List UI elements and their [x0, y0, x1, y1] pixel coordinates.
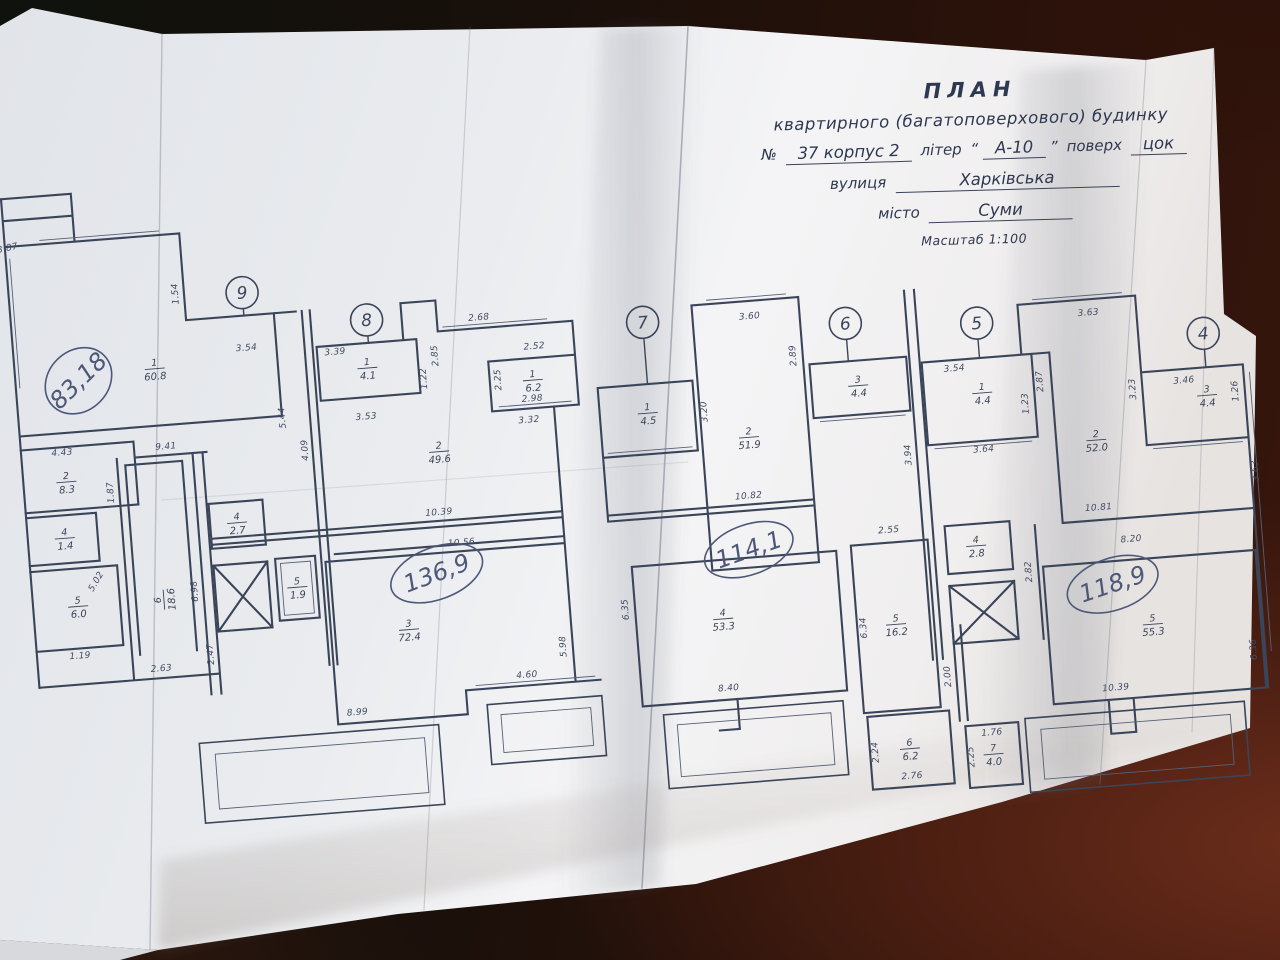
dimension: 3.54	[235, 343, 257, 355]
room-number: 5	[1149, 613, 1156, 624]
dimension: 10.82	[735, 490, 763, 502]
room-area: 4.4	[1199, 398, 1216, 410]
room-number: 2	[1092, 429, 1099, 440]
dimension-label: 10.81	[1085, 502, 1113, 514]
dimension-label: 2.87	[1035, 370, 1047, 392]
building-number-row: № 37 корпус 2 літер “ А-10 ” поверх цок	[741, 133, 1201, 167]
dimension-label: 2.82	[1024, 561, 1036, 583]
dimension: 6.35	[620, 599, 632, 621]
city-value: Суми	[928, 198, 1073, 223]
dimension: 2.47	[206, 643, 218, 665]
room-area: 4.4	[975, 395, 992, 407]
dimension: 2.25	[493, 369, 505, 391]
dimension-label: 10.39	[1102, 682, 1130, 694]
room-area: 2.8	[969, 548, 986, 560]
dimension: 8.99	[346, 707, 368, 719]
street-value: Харківська	[895, 166, 1119, 193]
dimension: 3.60	[739, 311, 761, 323]
dimension-label: 8.20	[1120, 534, 1142, 546]
dimension-label: 10.39	[425, 507, 453, 519]
dimension: 3.20	[699, 401, 711, 423]
dimension: 1.76	[981, 727, 1003, 739]
room-number: 2	[63, 471, 70, 482]
quote-close: ”	[1050, 138, 1058, 156]
floor-label: поверх	[1066, 136, 1122, 156]
dimension: 3.63	[1250, 460, 1262, 482]
room-number: 1	[529, 369, 536, 380]
city-label: місто	[878, 203, 920, 222]
dimension-label: 2.89	[788, 345, 800, 367]
dimension-label: 8.99	[346, 707, 368, 719]
room-area: 4.0	[986, 756, 1003, 768]
dimension-label: 1.19	[69, 651, 91, 663]
room-number: 3	[405, 618, 412, 629]
dimension-label: 4.60	[516, 670, 538, 682]
room-number: 7	[990, 743, 997, 754]
photo-of-floor-plan: 987654160.828.341.456.0618.614.1249.616.…	[0, 0, 1280, 960]
dimension: 5.98	[558, 636, 570, 658]
room-area: 1.4	[57, 541, 74, 553]
room-number: 2	[745, 426, 752, 437]
dimension: 3.94	[903, 444, 915, 466]
dimension-label: 6.34	[858, 617, 870, 639]
room-number: 3	[1203, 384, 1210, 395]
dimension: 1.26	[1230, 380, 1242, 402]
room-area: 55.3	[1142, 626, 1165, 639]
dimension: 8.40	[718, 683, 740, 695]
dimension: 6.34	[858, 617, 870, 639]
dimension: 6.36	[1248, 638, 1260, 660]
dimension-label: 2.25	[966, 746, 978, 768]
dimension-label: 2.55	[878, 525, 900, 537]
dimension: 2.55	[878, 525, 900, 537]
dimension: 3.23	[1128, 378, 1140, 400]
dimension-label: 3.32	[518, 415, 540, 427]
dimension: 4.60	[516, 670, 538, 682]
dimension-label: 6.36	[1248, 638, 1260, 660]
dimension-label: 3.63	[1250, 460, 1262, 482]
dimension: 6.98	[190, 580, 202, 602]
room-area: 51.9	[738, 439, 761, 452]
dimension: 9.41	[155, 441, 177, 453]
dimension-label: 3.39	[324, 347, 346, 359]
dimension: 5.44	[277, 407, 289, 429]
city-row: місто Суми	[743, 195, 1203, 229]
dimension: 3.53	[355, 411, 377, 423]
dimension-label: 5.44	[277, 407, 289, 429]
axis-number: 8	[360, 311, 373, 332]
room-area: 4.5	[640, 416, 657, 428]
dimension-label: 10.82	[735, 490, 763, 502]
room-number: 1	[644, 402, 651, 413]
dimension: 1.23	[1020, 392, 1032, 414]
quote-open: “	[970, 140, 978, 158]
no-label: №	[761, 145, 777, 163]
axis-number: 4	[1197, 324, 1209, 345]
dimension: 10.39	[425, 507, 453, 519]
room-number: 5	[293, 576, 300, 587]
dimension-label: 4.09	[300, 439, 312, 461]
dimension: 3.63	[1077, 307, 1099, 319]
room-area: 18.6	[166, 588, 179, 611]
room-number: 5	[74, 595, 81, 606]
room-number: 4	[233, 512, 240, 523]
dimension: 2.76	[901, 771, 923, 783]
dimension-label: 2.68	[468, 312, 490, 324]
dimension: 3.46	[1173, 375, 1195, 387]
dimension-label: 1.26	[1230, 380, 1242, 402]
dimension-label: 2.85	[430, 345, 442, 367]
dimension: 1.22	[419, 368, 431, 390]
room-area: 52.0	[1085, 442, 1108, 455]
dimension: 2.87	[1035, 370, 1047, 392]
room-number: 6	[153, 597, 164, 604]
axis-number: 5	[971, 314, 983, 335]
axis-stub	[243, 309, 244, 317]
room-area: 1.9	[290, 590, 307, 602]
dimension: 3.32	[518, 415, 540, 427]
dimension-label: 3.63	[1077, 307, 1099, 319]
liter-value: А-10	[983, 137, 1046, 160]
dimension-label: 1.23	[1020, 392, 1032, 414]
dimension: 2.24	[870, 741, 882, 763]
dimension-label: 3.54	[943, 363, 965, 375]
dimension: 2.00	[943, 665, 955, 687]
dimension-label: 4.43	[51, 447, 73, 459]
dimension-label: 8.40	[718, 683, 740, 695]
room-area: 53.3	[712, 621, 735, 634]
room-area: 6.0	[70, 609, 87, 621]
dimension-label: 2.47	[206, 643, 218, 665]
dimension-label: 3.23	[1128, 378, 1140, 400]
dimension: 2.98	[521, 393, 543, 405]
dimension-label: 6.35	[620, 599, 632, 621]
dimension-label: 1.54	[170, 283, 182, 305]
dimension-label: 2.25	[493, 369, 505, 391]
plan-subtitle: квартирного (багатоповерхового) будинку	[741, 104, 1201, 136]
room-number: 5	[892, 613, 899, 624]
street-row: вулиця Харківська	[742, 164, 1202, 198]
room-area: 6.2	[902, 751, 919, 763]
room-area: 49.6	[428, 454, 451, 467]
axis-number: 7	[637, 313, 650, 334]
room-area: 4.1	[360, 370, 377, 382]
room-number: 4	[972, 535, 979, 546]
dimension-label: 9.41	[155, 441, 177, 453]
dimension: 2.89	[788, 345, 800, 367]
axis-stub	[368, 336, 369, 344]
dimension: 2.68	[468, 312, 490, 324]
dimension: 10.81	[1085, 502, 1113, 514]
room-area: 2.7	[229, 525, 246, 537]
dimension-label: 2.00	[943, 665, 955, 687]
dimension: 2.63	[150, 663, 172, 675]
dimension-label: 2.76	[901, 771, 923, 783]
room-number: 1	[363, 357, 370, 368]
dimension: 4.43	[51, 447, 73, 459]
dimension: 1.87	[106, 482, 118, 504]
dimension: 8.20	[1120, 534, 1142, 546]
dimension-label: 2.98	[521, 393, 543, 405]
dimension: 1.54	[170, 283, 182, 305]
dimension-label: 1.76	[981, 727, 1003, 739]
room-area: 16.2	[885, 626, 908, 639]
dimension: 2.52	[523, 341, 545, 353]
dimension-label: 2.52	[523, 341, 545, 353]
dimension: 4.09	[300, 439, 312, 461]
room-number: 4	[61, 527, 68, 538]
dimension: 2.85	[430, 345, 442, 367]
room-area: 60.8	[144, 371, 167, 384]
dimension-label: 3.53	[355, 411, 377, 423]
room-number: 2	[435, 440, 442, 451]
room-number: 3	[854, 374, 861, 385]
title-block: ПЛАН квартирного (багатоповерхового) буд…	[740, 72, 1205, 254]
dimension-label: 2.63	[150, 663, 172, 675]
dimension-label: 3.54	[235, 343, 257, 355]
floor-value: цок	[1131, 133, 1187, 156]
dimension: 2.25	[966, 746, 978, 768]
axis-number: 9	[236, 283, 248, 304]
dimension-label: 3.20	[699, 401, 711, 423]
dimension: 3.64	[973, 444, 995, 456]
dimension: 3.39	[324, 347, 346, 359]
dimension: 3.54	[943, 363, 965, 375]
building-number-value: 37 корпус 2	[785, 141, 912, 166]
dimension-label: 5.98	[558, 636, 570, 658]
liter-label: літер	[920, 140, 962, 159]
dimension-label: 1.22	[419, 368, 431, 390]
room-number: 1	[978, 382, 985, 393]
dimension-label: 3.94	[903, 444, 915, 466]
dimension-label: 3.46	[1173, 375, 1195, 387]
room-area: 4.4	[851, 388, 868, 400]
dimension-label: 6.98	[190, 580, 202, 602]
dimension: 2.82	[1024, 561, 1036, 583]
room-number: 6	[906, 737, 913, 748]
dimension-label: 2.24	[870, 741, 882, 763]
room-number: 4	[719, 608, 726, 619]
room-area: 72.4	[398, 632, 421, 645]
street-label: вулиця	[830, 173, 887, 193]
dimension-label: 1.87	[106, 482, 118, 504]
room-area: 8.3	[59, 484, 76, 496]
dimension: 10.39	[1102, 682, 1130, 694]
dimension-label: 3.64	[973, 444, 995, 456]
room-number: 1	[151, 358, 158, 369]
dimension: 1.19	[69, 651, 91, 663]
dimension-label: 3.60	[739, 311, 761, 323]
axis-number: 6	[839, 314, 852, 335]
